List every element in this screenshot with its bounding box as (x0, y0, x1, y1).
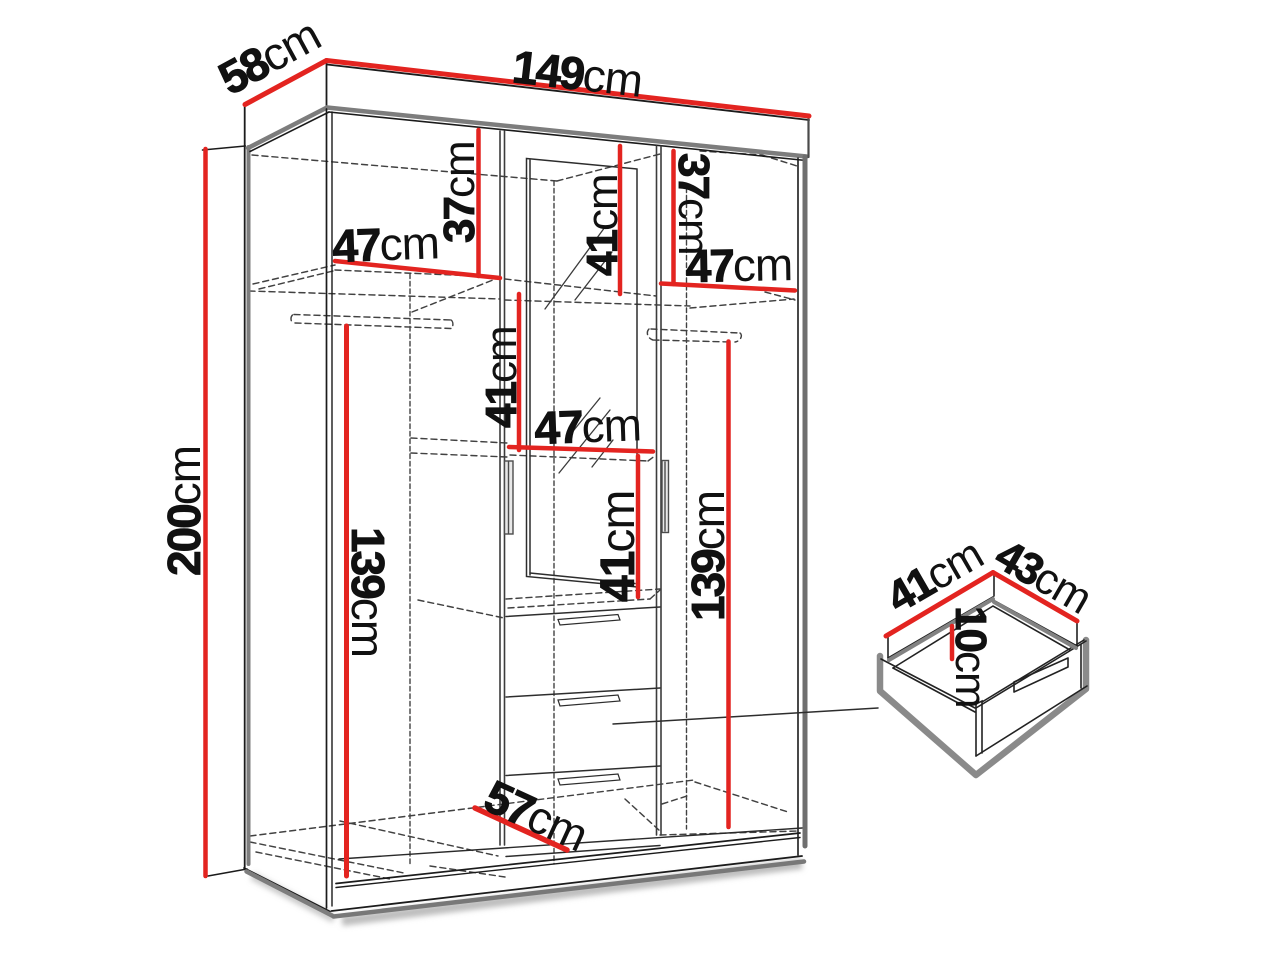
svg-text:149cm: 149cm (510, 40, 645, 107)
svg-text:47cm: 47cm (685, 238, 792, 292)
svg-text:37cm: 37cm (435, 141, 484, 243)
svg-text:41cm: 41cm (477, 326, 526, 428)
svg-text:139cm: 139cm (682, 491, 734, 621)
svg-text:47cm: 47cm (332, 216, 440, 272)
svg-text:10cm: 10cm (946, 606, 995, 708)
svg-text:200cm: 200cm (158, 446, 210, 576)
svg-text:139cm: 139cm (342, 527, 394, 657)
svg-text:47cm: 47cm (534, 398, 642, 454)
svg-text:41cm: 41cm (578, 174, 627, 276)
svg-text:41cm: 41cm (592, 491, 645, 602)
